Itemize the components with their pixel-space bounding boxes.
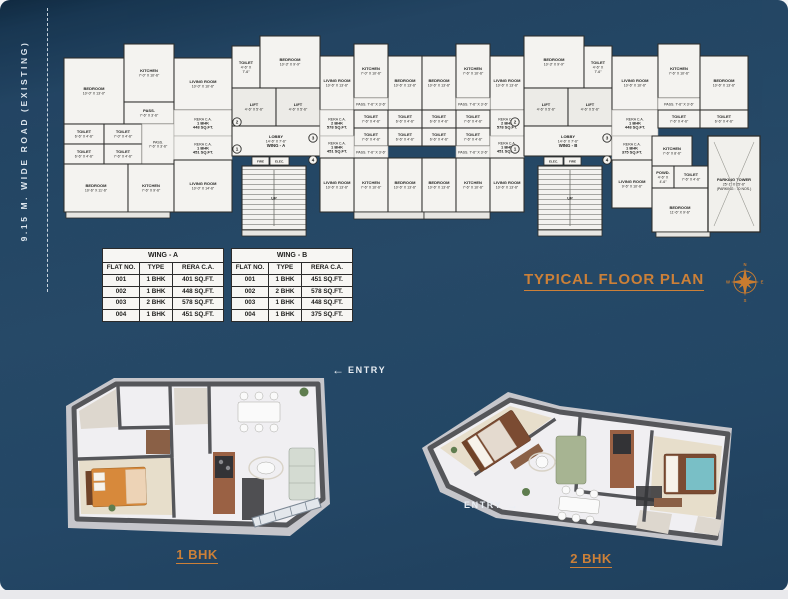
table-row: 0011 BHK451 SQ.FT. [232,274,353,286]
plan-room [66,212,170,218]
table-cell: 448 SQ.FT. [302,298,353,310]
entry-text: ENTRY [464,500,502,510]
table-cell: 578 SQ.FT. [302,286,353,298]
col-flat-no: FLAT NO. [103,262,140,274]
entry-arrow-right-icon: → [506,498,518,512]
plant [522,488,530,496]
room-label: BEDROOM10'-6" X 11'-6" [85,183,108,193]
room-label: KITCHEN7'-6" X 10'-6" [669,66,690,76]
wing-a-table: WING - A FLAT NO. TYPE RERA C.A. 0011 BH… [102,248,224,322]
table-row: 0041 BHK451 SQ.FT. [103,310,224,322]
col-rera: RERA C.A. [173,262,224,274]
road-label: 9.15 M. WIDE ROAD (EXISTING) [19,1,37,281]
table-cell: 001 [232,274,269,286]
dining-set [558,486,600,524]
table-cell: 1 BHK [140,274,173,286]
table-cell: 451 SQ.FT. [302,274,353,286]
table-cell: 001 [103,274,140,286]
flat-number: 2 [236,120,239,125]
flat-number: 1 [236,147,239,152]
entry-label-2bhk: ENTRY → [464,498,518,512]
plant [109,505,116,512]
wing-b-title: WING - B [232,249,353,263]
table-row: 0032 BHK578 SQ.FT. [103,298,224,310]
compass-n: N [743,262,746,267]
service-box-label: FIRE [257,159,264,163]
wardrobe [146,430,170,454]
plan-room [538,230,602,236]
room-label: LIVING ROOM10'-6" X 13'-6" [494,180,522,190]
flat-number: 1 [514,147,517,152]
room-label: BEDROOM10'-6" X 13'-6" [428,78,451,88]
cooktop [613,434,631,454]
plant [300,388,309,397]
room-label: KITCHEN7'-6" X 10'-6" [463,66,484,76]
table-cell: 2 BHK [269,286,302,298]
room-label: LIVING ROOM10'-6" X 13'-6" [324,78,352,88]
room-label: PASS. 7'-6" X 3'-6" [664,102,694,106]
room-label: KITCHEN7'-6" X 8'-6" [663,146,682,156]
room-label: BEDROOM10'-6" X 13'-6" [394,180,417,190]
room-label: LIVING ROOM10'-6" X 10'-6" [622,78,650,88]
table-cell: 375 SQ.FT. [302,310,353,322]
room-label: KITCHEN7'-0" X 10'-6" [361,66,382,76]
table-cell: 004 [232,310,269,322]
col-rera: RERA C.A. [302,262,353,274]
room-label: BEDROOM10'-3" X 9'-9" [280,57,302,67]
table-cell: 578 SQ.FT. [173,298,224,310]
flat-number: 3 [312,136,315,141]
flat-number: 4 [606,158,609,163]
room-label: BEDROOM11'-6" X 9'-6" [670,205,692,215]
room-label: BEDROOM10'-6" X 13'-6" [713,78,736,88]
table-row: 0011 BHK401 SQ.FT. [103,274,224,286]
table-row: 0031 BHK448 SQ.FT. [232,298,353,310]
col-flat-no: FLAT NO. [232,262,269,274]
service-box-label: ELEC. [549,159,558,163]
table-cell: 1 BHK [269,298,302,310]
room-label: LIVING ROOM10'-6" X 13'-6" [494,78,522,88]
col-type: TYPE [140,262,173,274]
unit-1bhk-render [52,356,344,550]
table-cell: 003 [232,298,269,310]
table-row: 0021 BHK448 SQ.FT. [103,286,224,298]
room-label: KITCHEN7'-6" X 10'-6" [361,180,382,190]
room-label: PASS. 7'-6" X 3'-6" [356,102,386,106]
brochure-card: 9.15 M. WIDE ROAD (EXISTING) BEDROOM10'-… [0,0,788,591]
unit-1bhk-label: 1 BHK [137,547,257,562]
kitchen-island [242,478,264,520]
dining-set [238,392,280,432]
room-label: KITCHEN7'-6" X 10'-6" [463,180,484,190]
room-label: BEDROOM10'-6" X 13'-6" [428,180,451,190]
table-cell: 1 BHK [140,286,173,298]
room-label: PASS. 7'-6" X 3'-6" [458,150,488,154]
table-row: 0022 BHK578 SQ.FT. [232,286,353,298]
floor-plan: BEDROOM10'-0" X 13'-0"KITCHEN7'-0" X 10'… [56,2,764,244]
plan-room [354,212,424,219]
unit-2bhk-render [414,370,756,558]
table-cell: 002 [103,286,140,298]
entry-text: ENTRY [348,365,386,375]
room-label: PASS. 7'-6" X 3'-6" [458,102,488,106]
table-cell: 401 SQ.FT. [173,274,224,286]
plant [451,447,457,453]
entry-arrow-left-icon: ← [332,363,344,377]
flat-number: 3 [606,136,609,141]
room-label: LIVING ROOM9'-6" X 10'-6" [619,179,647,189]
table-cell: 002 [232,286,269,298]
plan-room [424,212,490,219]
flat-number: 4 [312,158,315,163]
wing-b-table: WING - B FLAT NO. TYPE RERA C.A. 0011 BH… [231,248,353,322]
room-label: LIVING ROOM10'-6" X 13'-6" [324,180,352,190]
room-label: KITCHEN7'-0" X 10'-6" [139,68,160,78]
table-cell: 448 SQ.FT. [173,286,224,298]
table-cell: 1 BHK [269,274,302,286]
service-box-label: ELEC. [275,159,284,163]
room-label: BEDROOM10'-6" X 13'-6" [394,78,417,88]
room-label: LIVING ROOM10'-0" X 10'-6" [190,79,218,89]
table-cell: 2 BHK [140,298,173,310]
room-label: BEDROOM10'-0" X 13'-0" [83,86,106,96]
compass-e: E [761,279,764,284]
wing-a-title: WING - A [103,249,224,263]
bottom-strip [0,590,788,599]
room-label: PASS. 7'-6" X 3'-6" [356,150,386,154]
flat-number: 2 [514,120,517,125]
entry-label-1bhk: ← ENTRY [332,363,386,377]
table-cell: 003 [103,298,140,310]
compass-icon: N E S W [724,261,766,303]
cooktop [215,456,233,478]
bed [85,467,146,507]
table-cell: 1 BHK [140,310,173,322]
unit1-bath2-floor [174,388,208,425]
unit-2bhk-label: 2 BHK [531,551,651,566]
compass-s: S [744,298,747,303]
room-label: LIVING ROOM10'-0" X 14'-6" [190,181,218,191]
wing-tables: WING - A FLAT NO. TYPE RERA C.A. 0011 BH… [102,248,353,322]
plan-room [656,232,710,237]
road-dashed-line [47,8,48,292]
plan-title: TYPICAL FLOOR PLAN [524,271,704,291]
table-cell: 004 [103,310,140,322]
service-box-label: FIRE [569,159,576,163]
col-type: TYPE [269,262,302,274]
teal-throw [686,458,714,490]
room-label: KITCHEN7'-6" X 9'-6" [142,183,161,193]
table-row: 0041 BHK375 SQ.FT. [232,310,353,322]
table-cell: 451 SQ.FT. [173,310,224,322]
table-cell: 1 BHK [269,310,302,322]
room-label: BEDROOM10'-3" X 9'-9" [544,57,566,67]
plan-room [242,230,306,236]
compass-w: W [726,279,730,284]
